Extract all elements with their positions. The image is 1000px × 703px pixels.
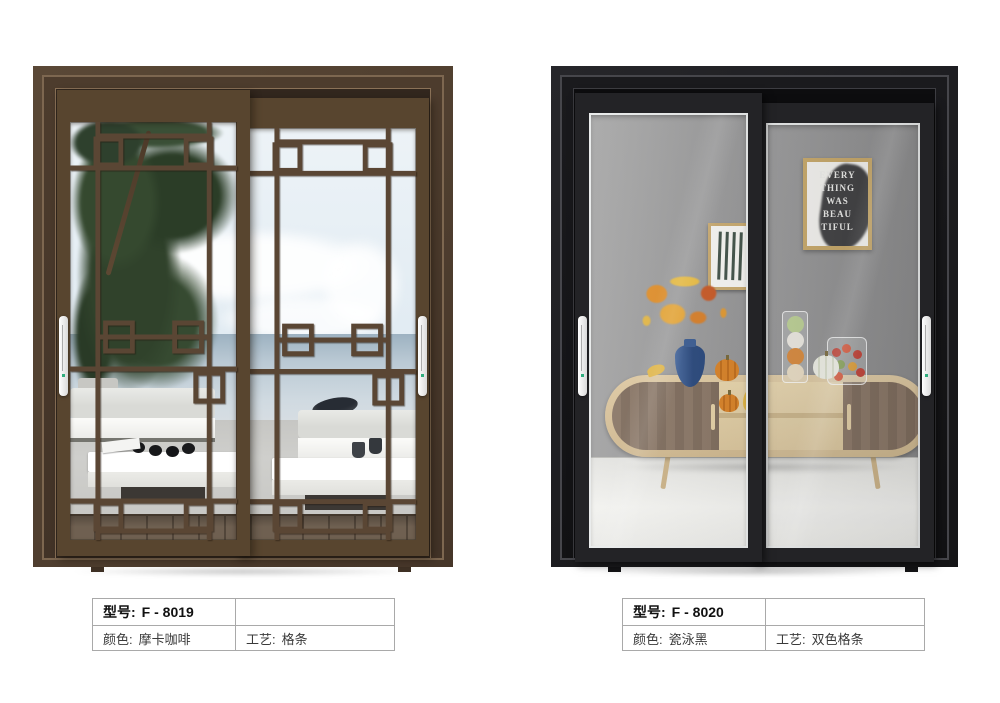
empty-cell (766, 599, 924, 625)
glass-reflection (766, 123, 920, 548)
model-value: F - 8020 (672, 604, 724, 620)
door-panel-left (575, 93, 762, 562)
glass-pane (249, 128, 416, 540)
catalog-page: 型号: F - 8019 颜色: 摩卡咖啡 工艺: 格条 (0, 0, 1000, 703)
craft-cell: 工艺: 格条 (236, 626, 394, 650)
door-panel-left (57, 90, 250, 556)
door-panel-right (752, 103, 934, 562)
empty-cell (236, 599, 394, 625)
model-label: 型号: (103, 602, 136, 622)
craft-label: 工艺: (246, 629, 276, 648)
craft-label: 工艺: (776, 629, 806, 648)
door-ground-shadow (593, 567, 913, 576)
glass-pane (589, 113, 748, 548)
door-handle (578, 316, 587, 396)
craft-cell: 工艺: 双色格条 (766, 626, 924, 650)
model-cell: 型号: F - 8020 (623, 599, 766, 625)
color-value: 瓷泳黑 (669, 629, 708, 648)
color-cell: 颜色: 摩卡咖啡 (93, 626, 236, 650)
model-value: F - 8019 (142, 604, 194, 620)
spec-row-model: 型号: F - 8019 (93, 599, 394, 626)
model-cell: 型号: F - 8019 (93, 599, 236, 625)
product-f8020: EVERY THING WAS BEAU TIFUL (551, 66, 958, 703)
glass-pane (766, 123, 920, 548)
spec-row-detail: 颜色: 摩卡咖啡 工艺: 格条 (93, 626, 394, 650)
spec-table-f8019: 型号: F - 8019 颜色: 摩卡咖啡 工艺: 格条 (92, 598, 395, 651)
product-f8019: 型号: F - 8019 颜色: 摩卡咖啡 工艺: 格条 (33, 66, 453, 703)
spec-row-detail: 颜色: 瓷泳黑 工艺: 双色格条 (623, 626, 924, 650)
glass-pane (70, 122, 237, 540)
door-handle (418, 316, 427, 396)
door-panel-right (236, 98, 429, 556)
door-ground-shadow (73, 567, 413, 576)
sliding-door-black: EVERY THING WAS BEAU TIFUL (551, 66, 958, 567)
color-value: 摩卡咖啡 (139, 629, 191, 648)
door-handle (59, 316, 68, 396)
lattice-grille (70, 122, 237, 540)
spec-table-f8020: 型号: F - 8020 颜色: 瓷泳黑 工艺: 双色格条 (622, 598, 925, 651)
lattice-grille (249, 128, 416, 540)
model-label: 型号: (633, 602, 666, 622)
glass-reflection (589, 113, 748, 548)
color-label: 颜色: (103, 629, 133, 648)
craft-value: 双色格条 (812, 629, 864, 648)
color-cell: 颜色: 瓷泳黑 (623, 626, 766, 650)
color-label: 颜色: (633, 629, 663, 648)
sliding-door-mocha (33, 66, 453, 567)
spec-row-model: 型号: F - 8020 (623, 599, 924, 626)
door-handle (922, 316, 931, 396)
craft-value: 格条 (282, 629, 308, 648)
